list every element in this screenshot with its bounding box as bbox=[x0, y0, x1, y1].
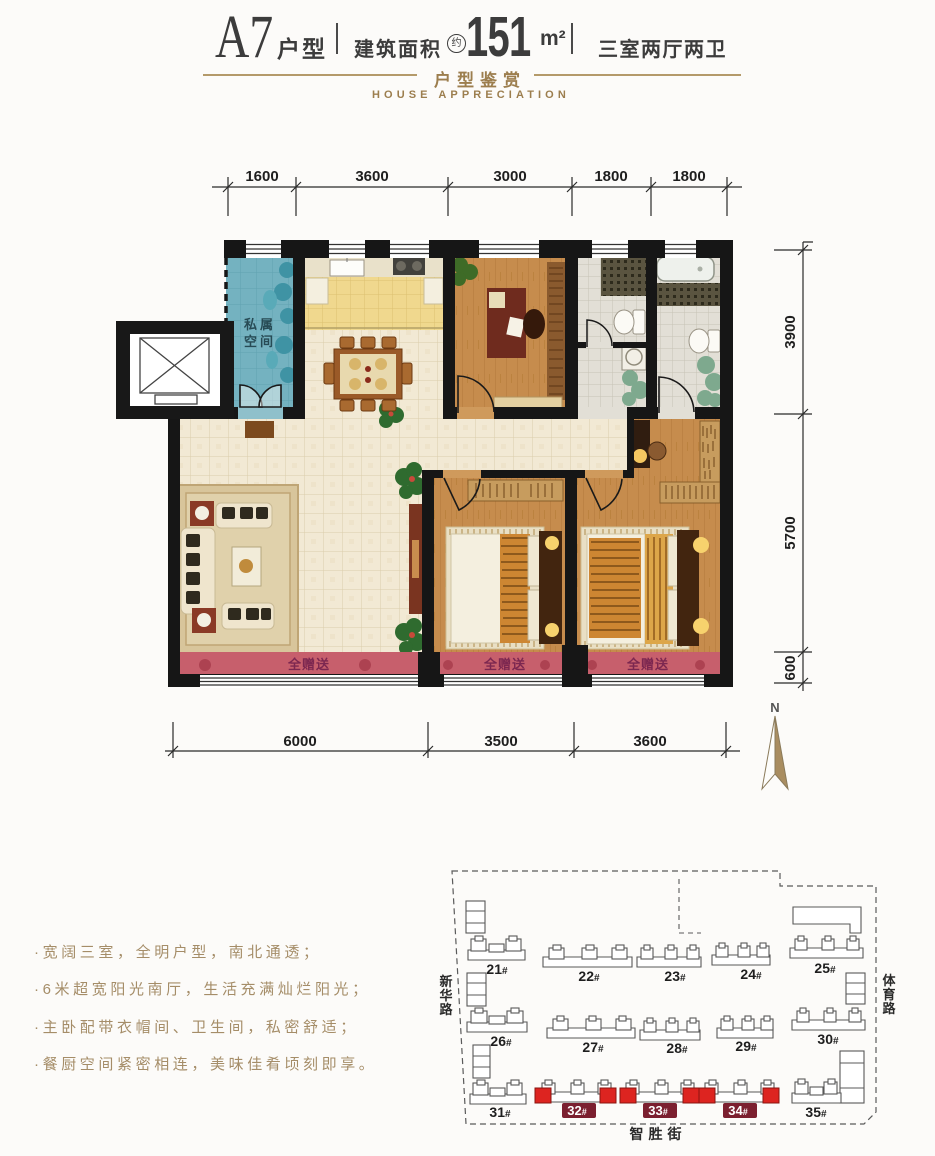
svg-text:智胜街: 智胜街 bbox=[629, 1126, 687, 1142]
svg-text:新: 新 bbox=[439, 974, 452, 989]
svg-text:全赠送: 全赠送 bbox=[626, 657, 669, 672]
svg-text:26#: 26# bbox=[490, 1033, 512, 1049]
svg-text:全赠送: 全赠送 bbox=[483, 657, 526, 672]
svg-text:21#: 21# bbox=[486, 961, 508, 977]
svg-text:3600: 3600 bbox=[355, 168, 388, 185]
svg-text:31#: 31# bbox=[489, 1104, 511, 1120]
svg-text:空间: 空间 bbox=[244, 334, 276, 349]
svg-text:路: 路 bbox=[439, 1002, 453, 1017]
svg-text:私属: 私属 bbox=[244, 317, 276, 332]
svg-text:6000: 6000 bbox=[283, 733, 316, 750]
svg-text:24#: 24# bbox=[740, 966, 762, 982]
svg-text:3500: 3500 bbox=[484, 733, 517, 750]
svg-text:N: N bbox=[770, 700, 779, 715]
svg-text:27#: 27# bbox=[582, 1039, 604, 1055]
svg-text:3000: 3000 bbox=[493, 168, 526, 185]
svg-text:35#: 35# bbox=[805, 1104, 827, 1120]
svg-text:育: 育 bbox=[882, 987, 895, 1002]
svg-text:25#: 25# bbox=[814, 960, 836, 976]
svg-text:22#: 22# bbox=[578, 968, 600, 984]
svg-text:体: 体 bbox=[882, 973, 896, 988]
svg-text:600: 600 bbox=[782, 655, 799, 680]
svg-text:23#: 23# bbox=[664, 968, 686, 984]
svg-text:30#: 30# bbox=[817, 1031, 839, 1047]
svg-text:全赠送: 全赠送 bbox=[287, 657, 330, 672]
svg-text:1800: 1800 bbox=[594, 168, 627, 185]
svg-text:1800: 1800 bbox=[672, 168, 705, 185]
svg-text:1600: 1600 bbox=[245, 168, 278, 185]
svg-text:29#: 29# bbox=[735, 1038, 757, 1054]
svg-text:5700: 5700 bbox=[782, 516, 799, 549]
svg-text:华: 华 bbox=[439, 988, 452, 1003]
svg-text:路: 路 bbox=[882, 1001, 896, 1016]
svg-text:3600: 3600 bbox=[633, 733, 666, 750]
svg-text:3900: 3900 bbox=[782, 315, 799, 348]
svg-text:28#: 28# bbox=[666, 1040, 688, 1056]
